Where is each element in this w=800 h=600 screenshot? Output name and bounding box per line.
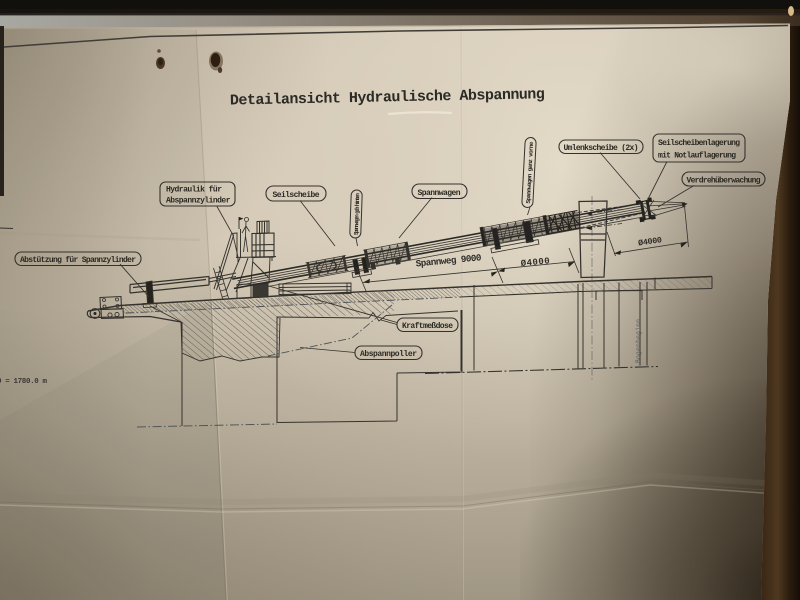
svg-text:Spannwagen geb hinten: Spannwagen geb hinten: [353, 192, 361, 235]
svg-text:Umlenkscheibe (2x): Umlenkscheibe (2x): [564, 144, 639, 153]
svg-text:Kraftmeßdose: Kraftmeßdose: [402, 322, 453, 331]
svg-text:Seilscheibenlagerung: Seilscheibenlagerung: [658, 139, 740, 148]
svg-text:Seilscheibe: Seilscheibe: [273, 191, 320, 200]
svg-text:Abspannzylinder: Abspannzylinder: [166, 197, 231, 206]
svg-text:Spannwagen: Spannwagen: [418, 189, 461, 198]
svg-text:Abstützung für Spannzylinder: Abstützung für Spannzylinder: [20, 256, 136, 265]
svg-text:Hydraulik für: Hydraulik für: [166, 186, 222, 195]
svg-text:Bogenbeginn: Bogenbeginn: [635, 319, 642, 363]
svg-text:mit Notlauflagerung: mit Notlauflagerung: [658, 152, 736, 161]
svg-text:0 = 1780.0 m: 0 = 1780.0 m: [0, 378, 47, 386]
svg-text:Verdrehüberwachung: Verdrehüberwachung: [687, 177, 761, 186]
svg-text:Abspannpoller: Abspannpoller: [360, 350, 417, 359]
